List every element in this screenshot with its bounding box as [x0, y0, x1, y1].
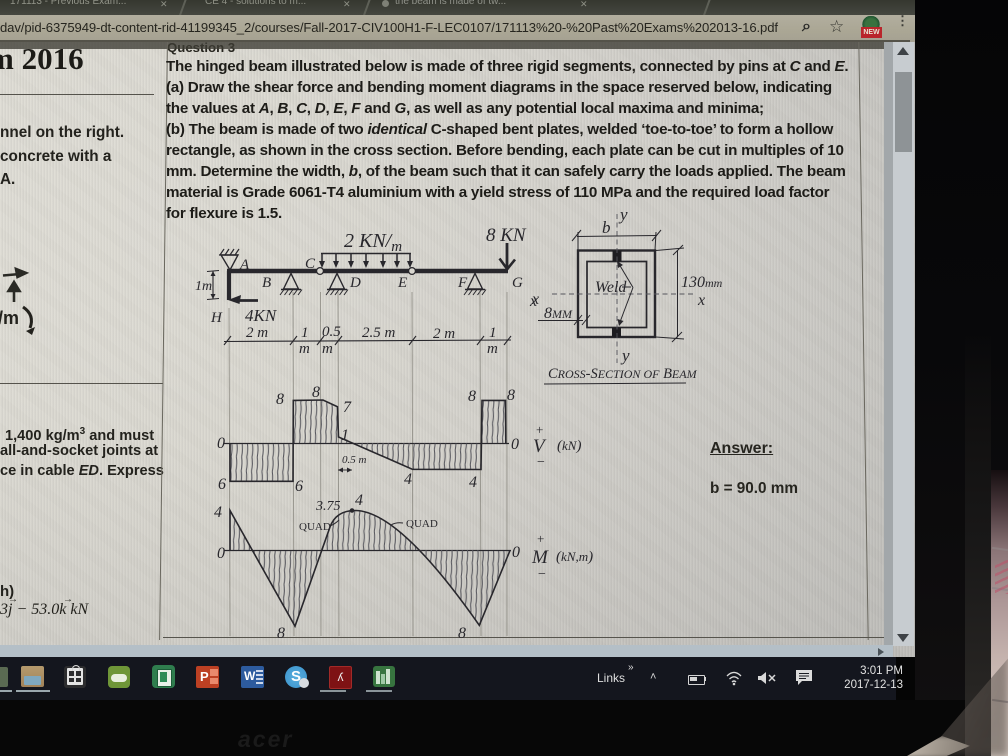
svg-text:130mm: 130mm [681, 274, 723, 291]
svg-text:y: y [620, 346, 630, 365]
svg-text:4: 4 [469, 474, 477, 491]
svg-text:6: 6 [218, 476, 226, 493]
svg-text:8: 8 [312, 384, 320, 401]
svg-text:3.75: 3.75 [315, 499, 341, 514]
svg-text:0.5: 0.5 [322, 324, 341, 340]
svg-text:2 m: 2 m [433, 326, 455, 342]
svg-text:M: M [531, 547, 549, 568]
svg-text:−: − [538, 567, 546, 582]
svg-text:(kN): (kN) [557, 438, 581, 454]
svg-text:0: 0 [512, 544, 520, 561]
svg-text:QUAD: QUAD [299, 521, 331, 533]
svg-text:4: 4 [355, 492, 363, 509]
svg-text:C: C [305, 256, 316, 272]
svg-text:1: 1 [301, 325, 309, 341]
svg-text:0: 0 [217, 545, 225, 562]
svg-text:8 KN: 8 KN [486, 225, 527, 246]
svg-text:(kN,m): (kN,m) [556, 549, 593, 565]
svg-text:8: 8 [458, 625, 466, 642]
svg-text:0: 0 [511, 436, 519, 453]
svg-text:QUAD: QUAD [406, 518, 438, 530]
svg-text:m: m [299, 341, 310, 357]
svg-text:8MM: 8MM [544, 305, 573, 322]
svg-text:1: 1 [341, 427, 349, 444]
svg-text:1m: 1m [195, 279, 212, 294]
svg-text:2 KN/m: 2 KN/m [344, 230, 402, 255]
svg-text:H: H [210, 310, 223, 326]
svg-text:+: + [537, 531, 544, 546]
svg-text:+: + [536, 422, 543, 437]
svg-text:8: 8 [277, 625, 285, 642]
svg-text:CROSS-SECTION OF BEAM: CROSS-SECTION OF BEAM [548, 366, 698, 382]
svg-text:m: m [322, 341, 333, 357]
svg-text:x: x [531, 291, 539, 308]
svg-text:G: G [512, 275, 523, 291]
svg-text:x: x [697, 292, 705, 309]
svg-text:D: D [349, 275, 361, 291]
svg-text:6: 6 [295, 478, 303, 495]
svg-text:2.5 m: 2.5 m [362, 325, 396, 341]
svg-text:8: 8 [276, 391, 284, 408]
svg-text:B: B [262, 275, 271, 291]
svg-text:y: y [618, 205, 628, 224]
svg-text:4: 4 [214, 504, 222, 521]
svg-text:A: A [239, 257, 250, 273]
svg-text:b: b [602, 218, 611, 237]
svg-text:2 m: 2 m [246, 325, 268, 341]
svg-text:4KN: 4KN [245, 306, 278, 325]
svg-text:7: 7 [343, 399, 352, 416]
svg-text:8: 8 [507, 387, 515, 404]
svg-text:−: − [537, 455, 545, 470]
svg-text:E: E [397, 275, 407, 291]
svg-text:8: 8 [468, 388, 476, 405]
svg-text:1: 1 [489, 325, 497, 341]
svg-text:V: V [533, 436, 547, 457]
svg-text:0.5 m: 0.5 m [342, 454, 367, 466]
svg-text:4: 4 [404, 471, 412, 488]
svg-text:m: m [487, 341, 498, 357]
svg-text:F: F [457, 275, 468, 291]
svg-text:0: 0 [217, 435, 225, 452]
